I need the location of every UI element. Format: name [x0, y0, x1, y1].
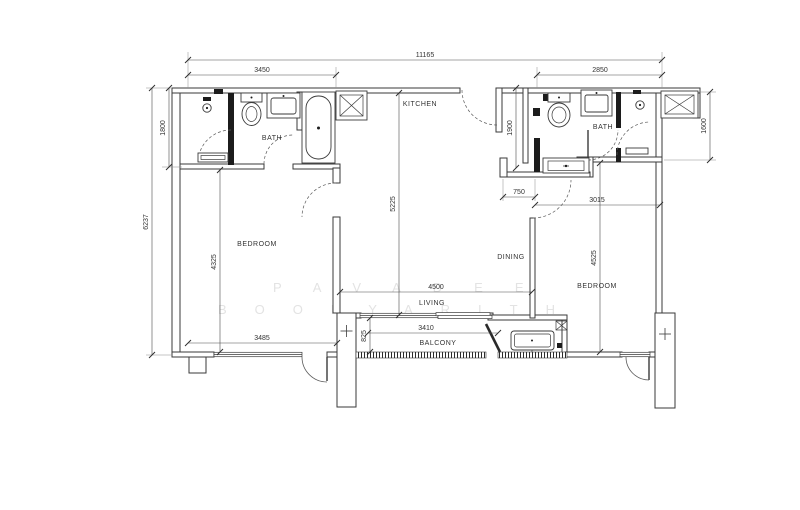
shaft-icon: [336, 91, 367, 120]
bathtub-icon: [302, 92, 335, 163]
bedroom-left-label: BEDROOM: [237, 241, 277, 248]
washer-icon: [543, 158, 589, 173]
sink-icon: [267, 93, 300, 118]
svg-text:750: 750: [513, 189, 525, 196]
bedroom-left-door-swing: [302, 183, 336, 217]
ac-unit-icon: [511, 331, 562, 354]
svg-text:825: 825: [361, 330, 368, 342]
svg-text:6237: 6237: [143, 214, 150, 230]
dim-bath-left-depth: 1800: [160, 85, 172, 170]
svg-text:1600: 1600: [701, 118, 708, 134]
dim-bedroom-right-door-offset: 750: [500, 189, 538, 200]
svg-text:3450: 3450: [254, 67, 270, 74]
structural-columns: [337, 313, 675, 408]
dim-bedroom-left-length: 4325: [211, 167, 223, 355]
bedroom-right-label: BEDROOM: [577, 283, 617, 290]
svg-text:1900: 1900: [507, 120, 514, 136]
svg-text:2850: 2850: [592, 67, 608, 74]
shower-drain-icon: [198, 153, 228, 162]
dim-overall-width: 11165: [185, 52, 665, 63]
svg-text:4525: 4525: [591, 250, 598, 266]
dim-right-section-width: 2850: [534, 67, 665, 78]
shower-head-icon: [626, 101, 648, 154]
dim-shaft-right-depth: 1600: [701, 89, 713, 163]
floor-plan-drawing: PAVADEE BOONYARITH: [0, 0, 800, 510]
svg-text:1800: 1800: [160, 120, 167, 136]
bath-right-label: BATH: [593, 124, 613, 131]
windows: [214, 313, 650, 357]
dim-bedroom-left-width: 3485: [185, 335, 340, 346]
shaft-icon: [661, 91, 698, 118]
balcony-right-door-swing: [626, 357, 649, 380]
bath-left-label: BATH: [262, 135, 282, 142]
shower-head-icon: [203, 97, 211, 112]
dim-bedroom-right-width: 3015: [532, 197, 663, 208]
svg-text:3485: 3485: [254, 335, 270, 342]
sink-icon: [581, 90, 612, 116]
balcony-partition: [486, 324, 500, 352]
svg-text:3015: 3015: [589, 197, 605, 204]
bedroom-right-door-swing: [533, 180, 571, 218]
svg-text:5225: 5225: [390, 196, 397, 212]
balcony-sliding-door: [438, 315, 492, 318]
balcony-left-door-swing: [302, 357, 327, 382]
dim-overall-left-height: 6237: [143, 85, 155, 358]
dim-balcony-depth: 825: [361, 315, 373, 355]
balcony-label: BALCONY: [420, 340, 457, 347]
dim-bedroom-right-length: 4525: [591, 160, 603, 355]
svg-text:3410: 3410: [418, 325, 434, 332]
entrance-door-swing: [462, 90, 497, 125]
svg-text:11165: 11165: [416, 52, 435, 59]
dining-label: DINING: [497, 254, 525, 261]
svg-text:4500: 4500: [428, 284, 444, 291]
living-label: LIVING: [419, 300, 445, 307]
column: [655, 313, 675, 408]
bath-right-door-swing: [588, 130, 618, 160]
dim-balcony-width: 3410: [365, 325, 501, 336]
svg-text:4325: 4325: [211, 254, 218, 270]
dim-left-section-width: 3450: [185, 67, 339, 78]
dim-foyer-depth: 1900: [507, 85, 519, 171]
toilet-icon: [241, 93, 262, 126]
toilet-icon: [548, 93, 570, 127]
walls: [172, 88, 700, 373]
floor-plan-page: PAVADEE BOONYARITH: [0, 0, 800, 510]
watermark: PAVADEE BOONYARITH: [218, 280, 583, 317]
kitchen-label: KITCHEN: [403, 101, 437, 108]
watermark-line1: PAVADEE: [273, 280, 556, 295]
